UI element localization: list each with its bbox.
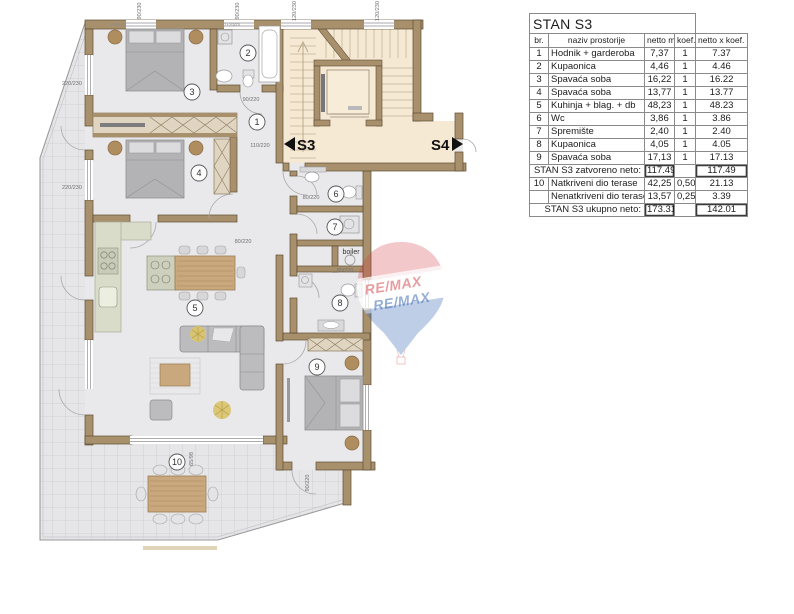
table-cell: 1 [675, 61, 696, 74]
elevator [314, 60, 382, 126]
table-cell: Spavaća soba [549, 152, 645, 165]
dimension-label: 80/220 [303, 195, 320, 201]
table-row: STAN S3 ukupno neto:173.31142.01 [530, 204, 748, 217]
svg-text:6: 6 [333, 189, 338, 199]
table-cell: Kuhinja + blag. + db [549, 100, 645, 113]
table-header-row: br.naziv prostorijenetto m²koef.netto x … [530, 34, 748, 48]
table-cell: 3 [530, 74, 549, 87]
table-title: STAN S3 [530, 14, 696, 34]
nightstand [108, 30, 122, 44]
table-cell: 6 [530, 113, 549, 126]
table-header-cell: br. [530, 34, 549, 48]
svg-text:10: 10 [172, 457, 182, 467]
dimension-label: 220/230 [62, 185, 82, 191]
dimension-label: 90/220 [243, 97, 260, 103]
svg-text:1: 1 [254, 117, 259, 127]
nightstand [189, 141, 203, 155]
table-cell: STAN S3 ukupno neto: [530, 204, 645, 217]
wardrobe-strip [93, 113, 237, 137]
table-cell: 48,23 [645, 100, 675, 113]
table-row: 3Spavaća soba16,22116.22 [530, 74, 748, 87]
table-cell: 1 [675, 126, 696, 139]
table-cell: Spremište [549, 126, 645, 139]
table-cell: 1 [675, 113, 696, 126]
table-header-cell: koef. [675, 34, 696, 48]
dimension-label: 80/220 [235, 239, 252, 245]
table-cell: STAN S3 zatvoreno neto: [530, 165, 645, 178]
wardrobe-room4 [214, 139, 230, 194]
area-table: STAN S3 br.naziv prostorijenetto m²koef.… [529, 13, 751, 217]
nightstand [108, 141, 122, 155]
table-row: 10Natkriveni dio terase42,250,5021.13 [530, 178, 748, 191]
nightstand [345, 356, 359, 370]
table-cell: 117.49 [696, 165, 748, 178]
table-cell: 17,13 [645, 152, 675, 165]
table-cell: 9 [530, 152, 549, 165]
table-row: 9Spavaća soba17,13117.13 [530, 152, 748, 165]
table-cell: 1 [530, 48, 549, 61]
table-cell: 3.86 [696, 113, 748, 126]
dimension-label: 110/220 [250, 143, 269, 149]
table-cell: 3,86 [645, 113, 675, 126]
table-cell [675, 204, 696, 217]
svg-text:7: 7 [332, 222, 337, 232]
table-cell: 48.23 [696, 100, 748, 113]
room-number-3: 3 [184, 84, 200, 100]
room-number-9: 9 [309, 359, 325, 375]
table-cell: Kupaonica [549, 139, 645, 152]
armchair [150, 400, 172, 420]
table-cell: Hodnik + garderoba [549, 48, 645, 61]
room-number-6: 6 [328, 186, 344, 202]
table-row: 5Kuhinja + blag. + db48,23148.23 [530, 100, 748, 113]
table-cell: Wc [549, 113, 645, 126]
table-cell: 1 [675, 139, 696, 152]
dimension-label: 120/230 [375, 1, 381, 21]
room-number-4: 4 [191, 165, 207, 181]
dimension-label: 90/230 [137, 3, 143, 20]
table-row: 6Wc3,8613.86 [530, 113, 748, 126]
table-row: 1Hodnik + garderoba7,3717.37 [530, 48, 748, 61]
nightstand [345, 436, 359, 450]
floor-plan-page: RE/MAX RE/MAX S3 S4 bojler 12345678910 9… [0, 0, 794, 614]
table-cell: Spavaća soba [549, 87, 645, 100]
room-number-2: 2 [240, 45, 256, 61]
table-cell [530, 191, 549, 204]
floor-plan-svg: RE/MAX RE/MAX S3 S4 bojler 12345678910 9… [0, 0, 530, 614]
table-cell: 1 [675, 100, 696, 113]
lintel-note: 7+20cm [109, 22, 125, 27]
svg-text:9: 9 [314, 362, 319, 372]
lower-building-edge [143, 546, 217, 550]
lintel-note: 7+20cm [224, 22, 240, 27]
table-cell: 4,05 [645, 139, 675, 152]
table-cell: 1 [675, 74, 696, 87]
table-cell: 2.40 [696, 126, 748, 139]
table-cell: 13,77 [645, 87, 675, 100]
svg-text:3: 3 [189, 87, 194, 97]
table-cell: 142.01 [696, 204, 748, 217]
table-cell: 5 [530, 100, 549, 113]
table-cell: 8 [530, 139, 549, 152]
dimension-label: 90/220 [305, 475, 311, 492]
table-cell: 21.13 [696, 178, 748, 191]
table-row: STAN S3 zatvoreno neto:117.49117.49 [530, 165, 748, 178]
table-row: 4Spavaća soba13,77113.77 [530, 87, 748, 100]
table-cell: 2,40 [645, 126, 675, 139]
table-cell: 0,25 [675, 191, 696, 204]
table-cell: 3.39 [696, 191, 748, 204]
room-number-1: 1 [249, 114, 265, 130]
table-cell: 13.77 [696, 87, 748, 100]
table-cell: 17.13 [696, 152, 748, 165]
svg-text:5: 5 [192, 303, 197, 313]
dimension-label: 220/230 [62, 81, 82, 87]
table-cell: 13,57 [645, 191, 675, 204]
table-header-cell: netto x koef. m² [696, 34, 748, 48]
table-cell: Nenatkriveni dio terase [549, 191, 645, 204]
svg-text:4: 4 [196, 168, 201, 178]
table-cell: Spavaća soba [549, 74, 645, 87]
table-cell: Kupaonica [549, 61, 645, 74]
svg-text:2: 2 [245, 48, 250, 58]
s4-label: S4 [431, 137, 450, 154]
svg-text:8: 8 [337, 298, 342, 308]
s3-label: S3 [297, 137, 315, 154]
table-cell: 7.37 [696, 48, 748, 61]
mirror [287, 378, 290, 422]
room-number-10: 10 [169, 454, 185, 470]
table-cell: 1 [675, 152, 696, 165]
table-cell: 7,37 [645, 48, 675, 61]
table-header-cell: naziv prostorije [549, 34, 645, 48]
table-title-row: STAN S3 [530, 14, 748, 34]
bojler-label: bojler [342, 249, 360, 256]
room-number-7: 7 [327, 219, 343, 235]
table-cell: 2 [530, 61, 549, 74]
table-cell: 117.49 [645, 165, 675, 178]
nightstand [189, 30, 203, 44]
table-row: 7Spremište2,4012.40 [530, 126, 748, 139]
table-cell: 0,50 [675, 178, 696, 191]
dimension-label: 120/230 [292, 1, 298, 21]
table-row: 2Kupaonica4,4614.46 [530, 61, 748, 74]
table-cell: 1 [675, 87, 696, 100]
table-cell: 7 [530, 126, 549, 139]
table-cell: 1 [675, 48, 696, 61]
dimension-label: 90/230 [235, 3, 241, 20]
table-cell: 4.05 [696, 139, 748, 152]
table-cell: 4,46 [645, 61, 675, 74]
room-number-8: 8 [332, 295, 348, 311]
table-row: Nenatkriveni dio terase13,570,253.39 [530, 191, 748, 204]
table-cell [675, 165, 696, 178]
table-row: 8Kupaonica4,0514.05 [530, 139, 748, 152]
table-cell: 4 [530, 87, 549, 100]
table-cell: 10 [530, 178, 549, 191]
table-cell: 4.46 [696, 61, 748, 74]
table-cell: 173.31 [645, 204, 675, 217]
room-number-5: 5 [187, 300, 203, 316]
table-cell: 42,25 [645, 178, 675, 191]
table-cell: Natkriveni dio terase [549, 178, 645, 191]
dimension-label: 65/98 [189, 452, 195, 466]
table-cell: 16,22 [645, 74, 675, 87]
dimension-label: 80/220 [337, 268, 354, 274]
table-header-cell: netto m² [645, 34, 675, 48]
table-cell: 16.22 [696, 74, 748, 87]
